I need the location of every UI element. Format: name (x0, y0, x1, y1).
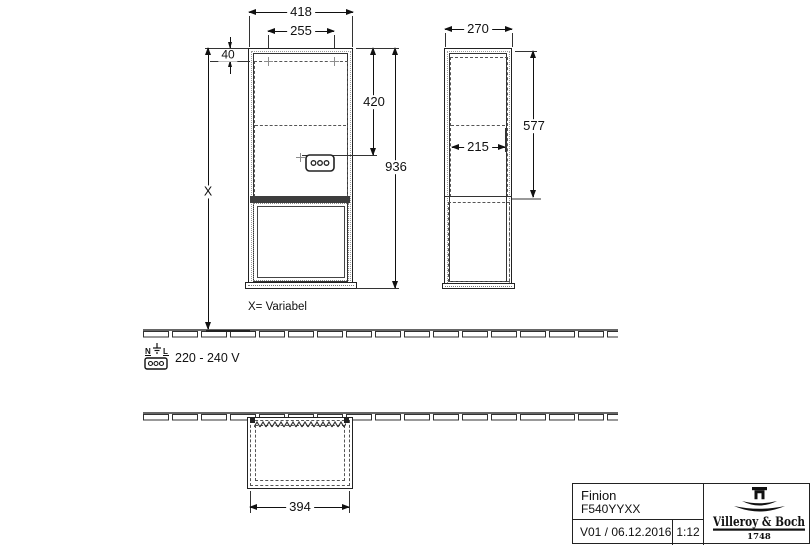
plan-inner-outline-2 (255, 425, 345, 481)
vb-fountain-icon (734, 487, 785, 512)
extension-line (512, 33, 513, 47)
dim-label-215: 215 (464, 140, 492, 154)
side-base (442, 283, 515, 289)
extension-line (356, 48, 399, 49)
extension-line (356, 288, 399, 289)
dim-arrow-40-bottom (230, 61, 231, 74)
wall-seal-zigzag (254, 420, 346, 429)
dim-label-394: 394 (286, 500, 314, 514)
extension-line (249, 16, 250, 47)
socket-cross-icon (296, 153, 305, 162)
voltage-label: 220 - 240 V (175, 351, 240, 365)
dim-label-x: X (201, 185, 215, 198)
vb-logo: Villeroy & Boch 1748 (711, 486, 807, 542)
drawing-scale: 1:12 (673, 525, 703, 539)
front-divider-band (250, 196, 350, 203)
plan-fixing-point (344, 418, 349, 423)
front-open-compartment (257, 206, 345, 278)
extension-line (505, 128, 506, 152)
dim-label-936: 936 (382, 160, 410, 174)
extension-line (512, 198, 541, 200)
side-junction-line (445, 196, 512, 197)
dim-label-577: 577 (520, 119, 548, 133)
wall-hatch-lower (143, 412, 618, 421)
dim-label-270: 270 (464, 22, 492, 36)
mounting-cross-icon (330, 57, 339, 66)
article-number: F540YYXX (581, 502, 640, 516)
dim-arrow-40-top (230, 37, 231, 48)
dim-label-40: 40 (218, 49, 237, 62)
ground-icon (153, 343, 161, 353)
brand-name: Villeroy & Boch (712, 515, 805, 530)
plan-fixing-point (250, 418, 255, 423)
power-outlet-icon: N L (144, 343, 170, 371)
version-date: V01 / 06.12.2016 (580, 525, 671, 539)
dim-label-420: 420 (360, 95, 388, 109)
brand-year: 1748 (747, 532, 771, 542)
title-block-divider (572, 519, 704, 520)
terminal-l-label: L (163, 347, 168, 356)
technical-drawing: 418 255 40 (0, 0, 811, 545)
side-door-outline (450, 57, 508, 197)
extension-line (515, 51, 537, 52)
terminal-n-label: N (145, 347, 151, 356)
dim-label-255: 255 (287, 24, 315, 38)
side-open-compartment (448, 202, 510, 282)
front-base (245, 282, 357, 289)
socket-icon (305, 154, 335, 172)
extension-line (352, 16, 353, 47)
product-name: Finion (581, 488, 616, 503)
title-block-divider (703, 483, 704, 545)
side-shelf-line (451, 125, 505, 126)
mounting-cross-icon (264, 57, 273, 66)
front-shelf-line (255, 125, 346, 126)
front-door-outline (254, 61, 348, 197)
variable-note: X= Variabel (248, 301, 307, 313)
dim-label-418: 418 (287, 5, 315, 19)
extension-line (205, 48, 248, 49)
extension-line (445, 33, 446, 47)
floor-reference-line (206, 330, 250, 332)
